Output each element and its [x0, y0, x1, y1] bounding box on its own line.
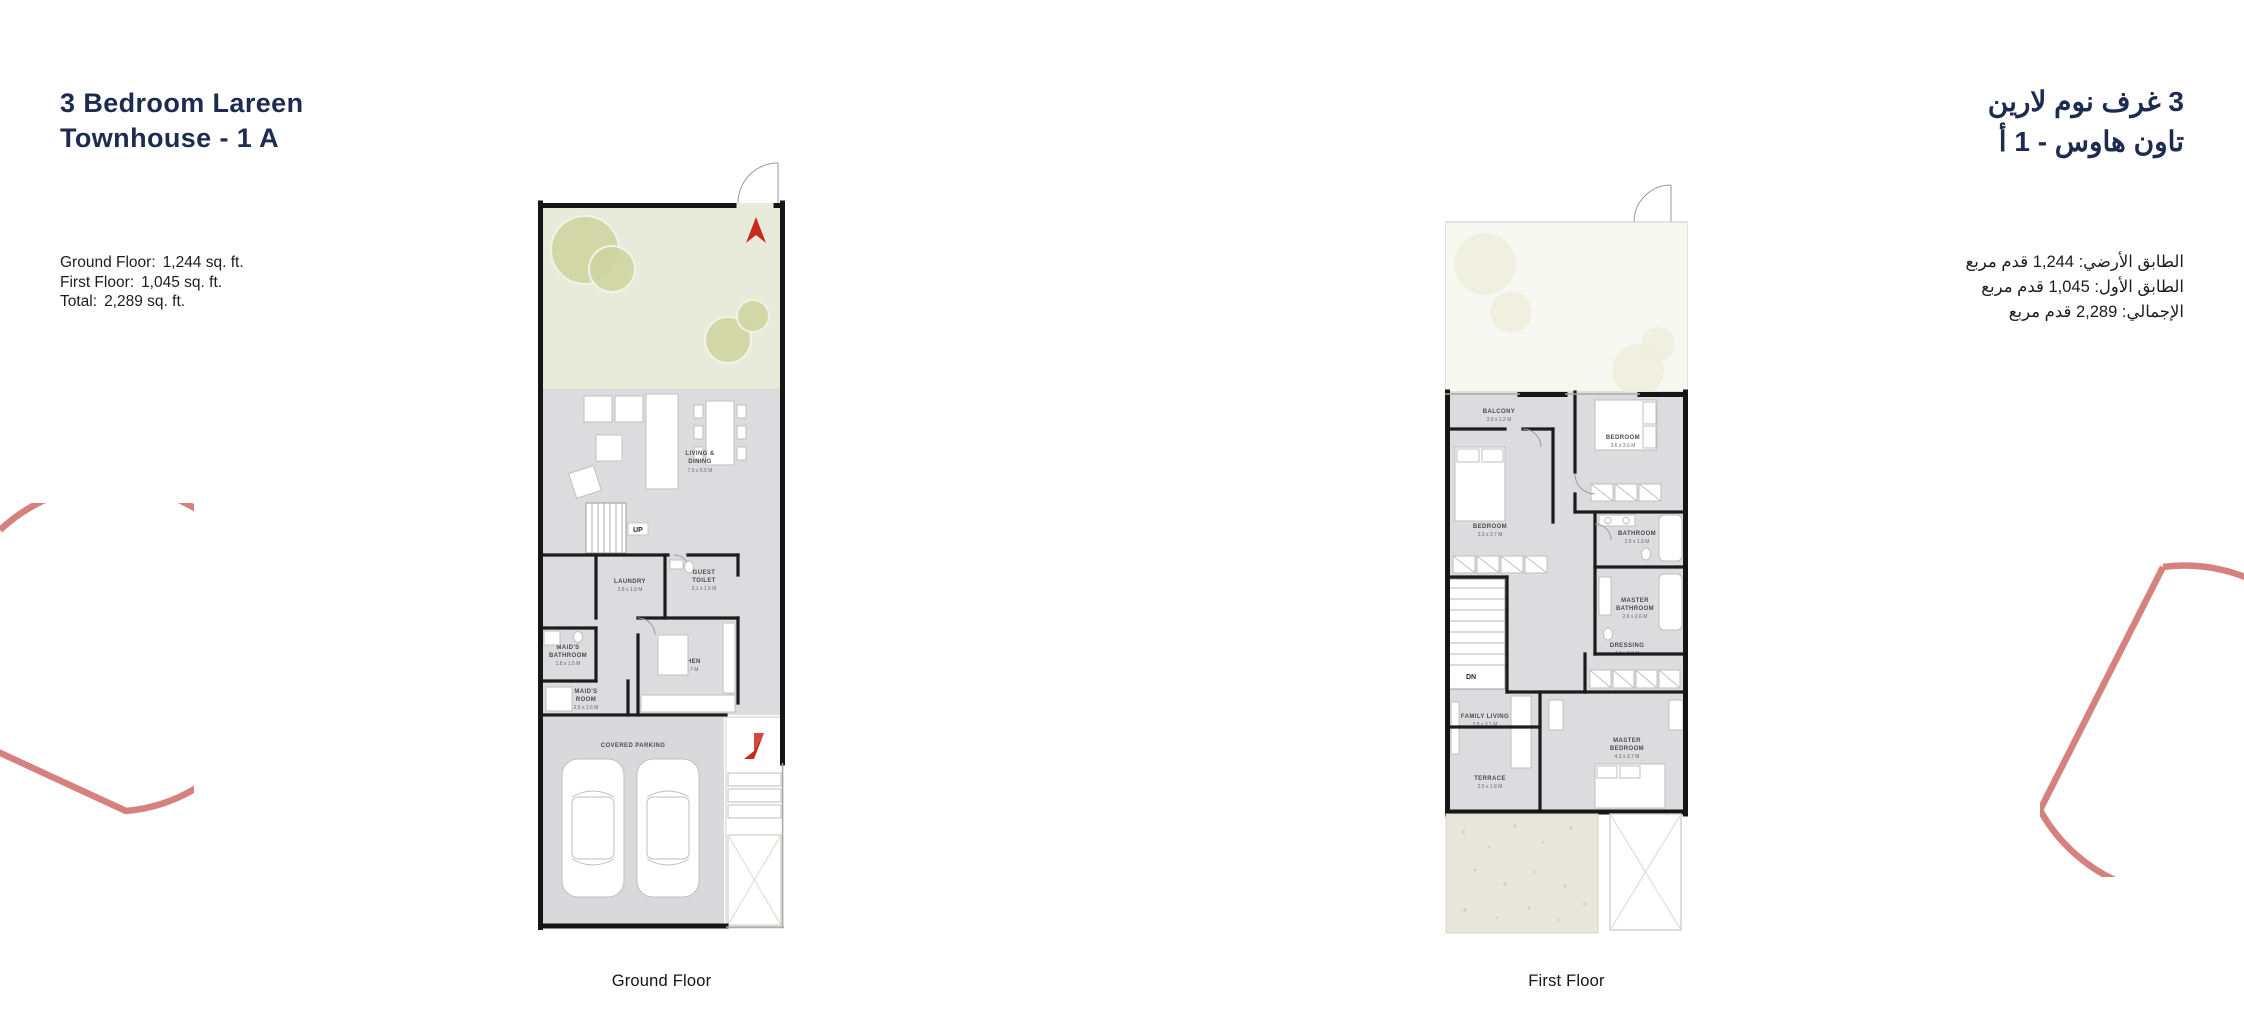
room-dims-balcony: 3.0 x 1.2 M	[1487, 417, 1512, 423]
title-ar-line-2: تاون هاوس - 1 أ	[1988, 122, 2184, 162]
first-floor-plan: BALCONY 3.0 x 1.2 M BEDROOM 3.3 x 3.7 M …	[1445, 182, 1688, 935]
room-label-master-bedroom: MASTER	[1613, 738, 1641, 744]
room-dims-maids-room: 2.5 x 1.6 M	[574, 705, 599, 711]
entry-door-swing-icon	[1634, 185, 1671, 222]
room-label-terrace: TERRACE	[1474, 776, 1506, 782]
area-ar-row-total: الإجمالي: 2,289 قدم مربع	[1965, 300, 2184, 325]
gravel-roof-area	[1446, 814, 1598, 933]
title-line-2: Townhouse - 1 A	[60, 121, 303, 156]
area-value: 2,289 sq. ft.	[104, 293, 185, 310]
area-row-ground: Ground Floor:1,244 sq. ft.	[60, 253, 244, 273]
room-dims-bedroom-right: 3.6 x 3.6 M	[1611, 443, 1636, 449]
title-line-1: 3 Bedroom Lareen	[60, 86, 303, 121]
area-stats-arabic: الطابق الأرضي: 1,244 قدم مربع الطابق الأ…	[1965, 250, 2184, 325]
area-row-total: Total:2,289 sq. ft.	[60, 292, 244, 312]
room-label-family-living: FAMILY LIVING	[1461, 714, 1509, 720]
ground-floor-caption: Ground Floor	[538, 972, 785, 991]
room-label-maids-room-2: ROOM	[576, 697, 596, 703]
room-dims-master-bedroom: 4.3 x 3.7 M	[1615, 754, 1640, 760]
room-dims-guest-toilet: 2.1 x 1.5 M	[692, 586, 717, 592]
room-dims-laundry: 2.8 x 1.9 M	[618, 587, 643, 593]
area-label: First Floor:	[60, 274, 134, 291]
bed-icon	[1455, 447, 1505, 521]
room-label-bedroom-left: BEDROOM	[1473, 524, 1507, 530]
entrance-strip	[726, 717, 783, 928]
room-dims-bedroom-left: 3.3 x 3.7 M	[1478, 532, 1503, 538]
room-label-laundry: LAUNDRY	[614, 579, 646, 585]
room-dims-maids-bathroom: 1.8 x 1.5 M	[556, 661, 581, 667]
room-label-maids-room: MAID'S	[574, 689, 597, 695]
decorative-arc-left	[0, 503, 194, 839]
area-stats-english: Ground Floor:1,244 sq. ft. First Floor:1…	[60, 253, 244, 312]
title-ar-line-1: 3 غرف نوم لارين	[1988, 82, 2184, 122]
brochure-page: 3 Bedroom Lareen Townhouse - 1 A Ground …	[0, 0, 2244, 1024]
page-title-arabic: 3 غرف نوم لارين تاون هاوس - 1 أ	[1988, 82, 2184, 162]
room-dims-terrace: 2.5 x 1.8 M	[1478, 784, 1503, 790]
room-label-master-bathroom-2: BATHROOM	[1616, 606, 1654, 612]
car-icon	[637, 759, 699, 897]
stairs-down: DN	[1449, 579, 1505, 689]
room-label-guest-toilet: GUEST	[693, 570, 716, 576]
wardrobe-icon	[1591, 484, 1661, 501]
room-label-bathroom: BATHROOM	[1618, 531, 1656, 537]
car-icon	[562, 759, 624, 897]
room-dims-master-bathroom: 2.6 x 2.6 M	[1623, 614, 1648, 620]
area-label: Ground Floor:	[60, 254, 156, 271]
ghost-garden-area	[1445, 222, 1688, 396]
area-label: Total:	[60, 293, 97, 310]
maids-bed-icon	[546, 687, 572, 711]
first-floor-caption: First Floor	[1445, 972, 1688, 991]
room-label-dressing: DRESSING	[1610, 643, 1645, 649]
void-area-icon	[1610, 814, 1681, 930]
decorative-arc-right	[2040, 545, 2244, 877]
entry-door-swing-icon	[738, 163, 778, 203]
void-area-icon	[728, 835, 781, 925]
area-value: 1,045 sq. ft.	[141, 274, 222, 291]
room-dims-living-dining: 7.0 x 5.5 M	[688, 468, 713, 474]
room-label-living-dining-2: DINING	[688, 459, 711, 465]
ground-floor-plan: LIVING & DINING 7.0 x 5.5 M UP	[538, 160, 785, 930]
room-label-living-dining: LIVING &	[685, 451, 714, 457]
room-label-maids-bathroom-2: BATHROOM	[549, 653, 587, 659]
stairs-down-label: DN	[1466, 674, 1476, 681]
area-row-first: First Floor:1,045 sq. ft.	[60, 273, 244, 293]
room-label-covered-parking: COVERED PARKING	[601, 743, 666, 749]
area-value: 1,244 sq. ft.	[163, 254, 244, 271]
room-label-master-bathroom: MASTER	[1621, 598, 1649, 604]
room-label-balcony: BALCONY	[1483, 409, 1515, 415]
room-label-guest-toilet-2: TOILET	[692, 578, 716, 584]
area-ar-row-first: الطابق الأول: 1,045 قدم مربع	[1965, 275, 2184, 300]
room-label-bedroom-right: BEDROOM	[1606, 435, 1640, 441]
room-label-master-bedroom-2: BEDROOM	[1610, 746, 1644, 752]
stairs-up-label: UP	[633, 527, 643, 534]
room-dims-bathroom: 2.5 x 1.9 M	[1625, 539, 1650, 545]
page-title-english: 3 Bedroom Lareen Townhouse - 1 A	[60, 86, 303, 156]
room-label-maids-bathroom: MAID'S	[556, 645, 579, 651]
area-ar-row-ground: الطابق الأرضي: 1,244 قدم مربع	[1965, 250, 2184, 275]
